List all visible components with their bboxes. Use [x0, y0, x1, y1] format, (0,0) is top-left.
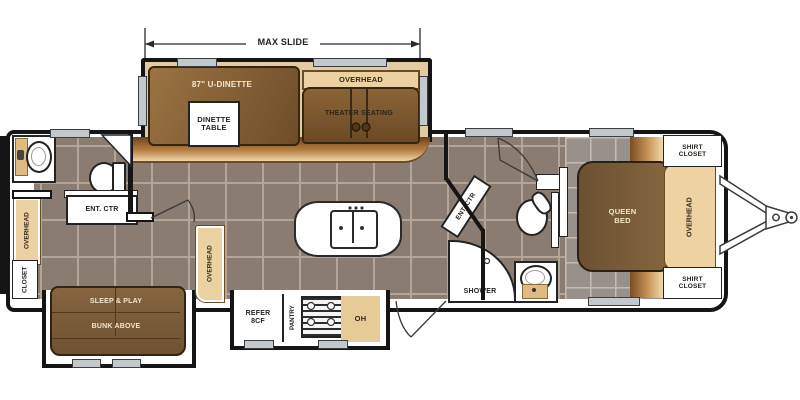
pocket-door: [559, 167, 568, 237]
bath-wall: [12, 190, 52, 199]
shirt-closet-top: SHIRT CLOSET: [663, 135, 722, 167]
closet-left: CLOSET: [12, 260, 38, 299]
overhead-bedroom: OVERHEAD: [664, 164, 716, 270]
ent-ctr-left-label: ENT. CTR: [85, 206, 118, 214]
sink-bowl: [525, 270, 545, 285]
bath-wall: [128, 134, 133, 220]
rv-floorplan: 87" U-DINETTE DINETTE TABLE OVERHEAD THE…: [0, 0, 800, 400]
faucet-icon: [17, 150, 24, 160]
window: [112, 359, 141, 368]
window: [318, 340, 348, 349]
wall-stub: [126, 212, 154, 222]
shirt-closet-top-label: SHIRT CLOSET: [671, 144, 715, 158]
window: [138, 76, 147, 126]
overhead-mid: OVERHEAD: [196, 226, 224, 302]
max-slide-dimension-label: MAX SLIDE: [248, 38, 318, 48]
queen-bed-label: QUEEN BED: [601, 208, 645, 224]
shower-label: SHOWER: [450, 288, 510, 296]
pocket-door: [551, 192, 559, 248]
bath-wall: [444, 134, 448, 180]
window: [419, 76, 428, 126]
queen-bed: QUEEN BED: [577, 161, 668, 272]
window: [244, 340, 274, 349]
island-sink-icon: [330, 210, 378, 249]
dinette-table-label: DINETTE TABLE: [194, 116, 234, 132]
theater-overhead-label: OVERHEAD: [339, 76, 383, 84]
sofa-seam: [52, 312, 180, 313]
bath-wall: [481, 229, 485, 300]
oh-label: OH: [355, 315, 367, 323]
bunk-label-2: BUNK ABOVE: [50, 323, 182, 331]
window: [72, 359, 101, 368]
window: [177, 58, 217, 67]
window: [50, 129, 90, 138]
window: [313, 58, 387, 67]
sofa-seam: [52, 338, 180, 339]
sink-bowl: [31, 147, 46, 166]
entry-door-opening: [392, 300, 445, 305]
theater-seating-label: THEATER SEATING: [302, 110, 416, 118]
bunk-label-1: SLEEP & PLAY: [50, 298, 182, 306]
shirt-closet-bottom: SHIRT CLOSET: [663, 267, 722, 299]
window: [465, 128, 513, 137]
dinette-table: DINETTE TABLE: [188, 101, 240, 147]
oh-cabinet: OH: [341, 296, 380, 342]
window: [588, 297, 640, 306]
overhead-left: OVERHEAD: [14, 198, 40, 264]
sink-divider: [352, 212, 354, 243]
refer-label: REFER 8CF: [240, 310, 276, 325]
vanity-cabinet: [522, 284, 548, 299]
hitch-icon: [720, 176, 797, 254]
bunk-sofa: [50, 286, 186, 356]
pantry: PANTRY: [282, 294, 301, 342]
shirt-closet-bottom-label: SHIRT CLOSET: [671, 276, 715, 290]
u-dinette-label: 87" U-DINETTE: [160, 81, 284, 90]
refrigerator: REFER 8CF: [234, 294, 284, 342]
window: [589, 128, 634, 137]
rear-wall: [0, 136, 9, 294]
toilet-tank: [112, 162, 126, 193]
range-icon: [301, 296, 345, 338]
